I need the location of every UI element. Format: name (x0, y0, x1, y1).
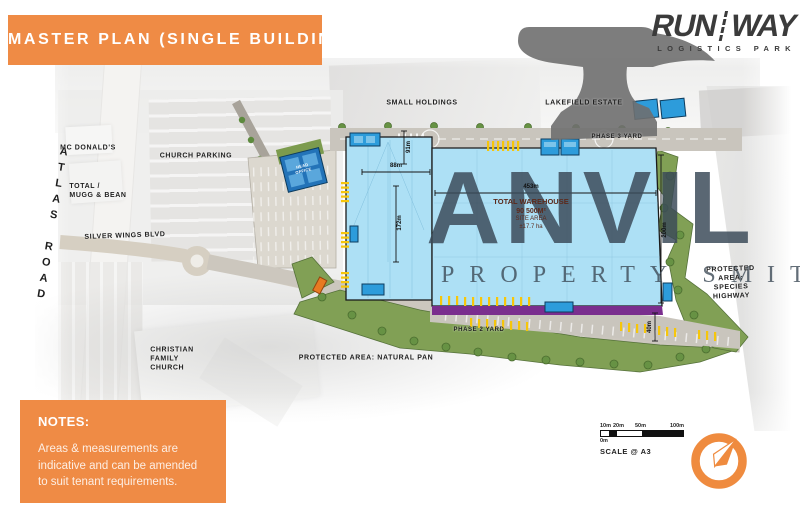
scale-50m: 50m (635, 423, 646, 429)
scale-20m: 20m (613, 423, 624, 429)
runway-word1: RUN (649, 10, 720, 41)
label-small-holdings: SMALL HOLDINGS (386, 98, 457, 107)
warehouse-title: TOTAL WAREHOUSE (493, 197, 568, 207)
label-church-parking: CHURCH PARKING (160, 151, 232, 160)
warehouse-annotation: TOTAL WAREHOUSE 90 500M² SITE AREA ±17.7… (493, 197, 568, 231)
scale-10m: 10m (600, 423, 611, 429)
scale-bar: 10m 20m 50m 100m 0m SCALE @ A3 (600, 423, 695, 456)
compass-icon (686, 428, 752, 494)
warehouse-site-area: ±17.7 ha (493, 223, 568, 231)
label-phase2-yard: PHASE 2 YARD (454, 327, 505, 335)
dim-172m: 172m (397, 215, 403, 230)
anvil-watermark-name: ANVIL (426, 156, 755, 259)
runway-wordmark: RUN WAY (637, 10, 800, 41)
notes-heading: NOTES: (38, 414, 208, 429)
warehouse-area: 90 500M² (493, 207, 568, 216)
label-christian-family-church: CHRISTIAN FAMILY CHURCH (150, 345, 194, 372)
warehouse-site-label: SITE AREA (493, 216, 568, 224)
runway-word2: WAY (728, 10, 799, 41)
dim-453m: 453m (523, 184, 538, 190)
label-protected-species-highway: PROTECTED AREA: SPECIES HIGHWAY (696, 264, 766, 303)
scale-100m: 100m (670, 423, 684, 429)
page-title-banner: MASTER PLAN (SINGLE BUILDING) (8, 15, 322, 65)
label-total-mugg-bean: TOTAL / MUGG & BEAN (69, 182, 126, 200)
label-protected-natural-pan: PROTECTED AREA: NATURAL PAN (299, 353, 434, 362)
label-lakefield-estate: LAKEFIELD ESTATE (545, 98, 622, 107)
scale-segments (600, 430, 684, 437)
compass (686, 428, 752, 499)
master-plan-page: ANVIL PROPERTY SMITH SMALL HOLDINGS LAKE… (0, 0, 800, 518)
scale-caption: SCALE @ A3 (600, 447, 695, 456)
label-phase3-yard: PHASE 3 YARD (592, 134, 643, 142)
notes-box: NOTES: Areas & measurements are indicati… (20, 400, 226, 503)
dim-91m: 91m (406, 141, 412, 153)
dim-88m: 88m (390, 163, 402, 169)
notes-body: Areas & measurements are indicative and … (38, 441, 208, 491)
runway-logo: RUN WAY LOGISTICS PARK (640, 10, 796, 53)
scale-0m: 0m (600, 438, 695, 444)
dim-40m: 40m (647, 321, 653, 333)
dim-200m: 200m (662, 222, 668, 237)
runway-centerline-icon (719, 11, 728, 41)
scale-top-labels: 10m 20m 50m 100m (600, 423, 695, 430)
runway-tagline: LOGISTICS PARK (640, 44, 796, 53)
